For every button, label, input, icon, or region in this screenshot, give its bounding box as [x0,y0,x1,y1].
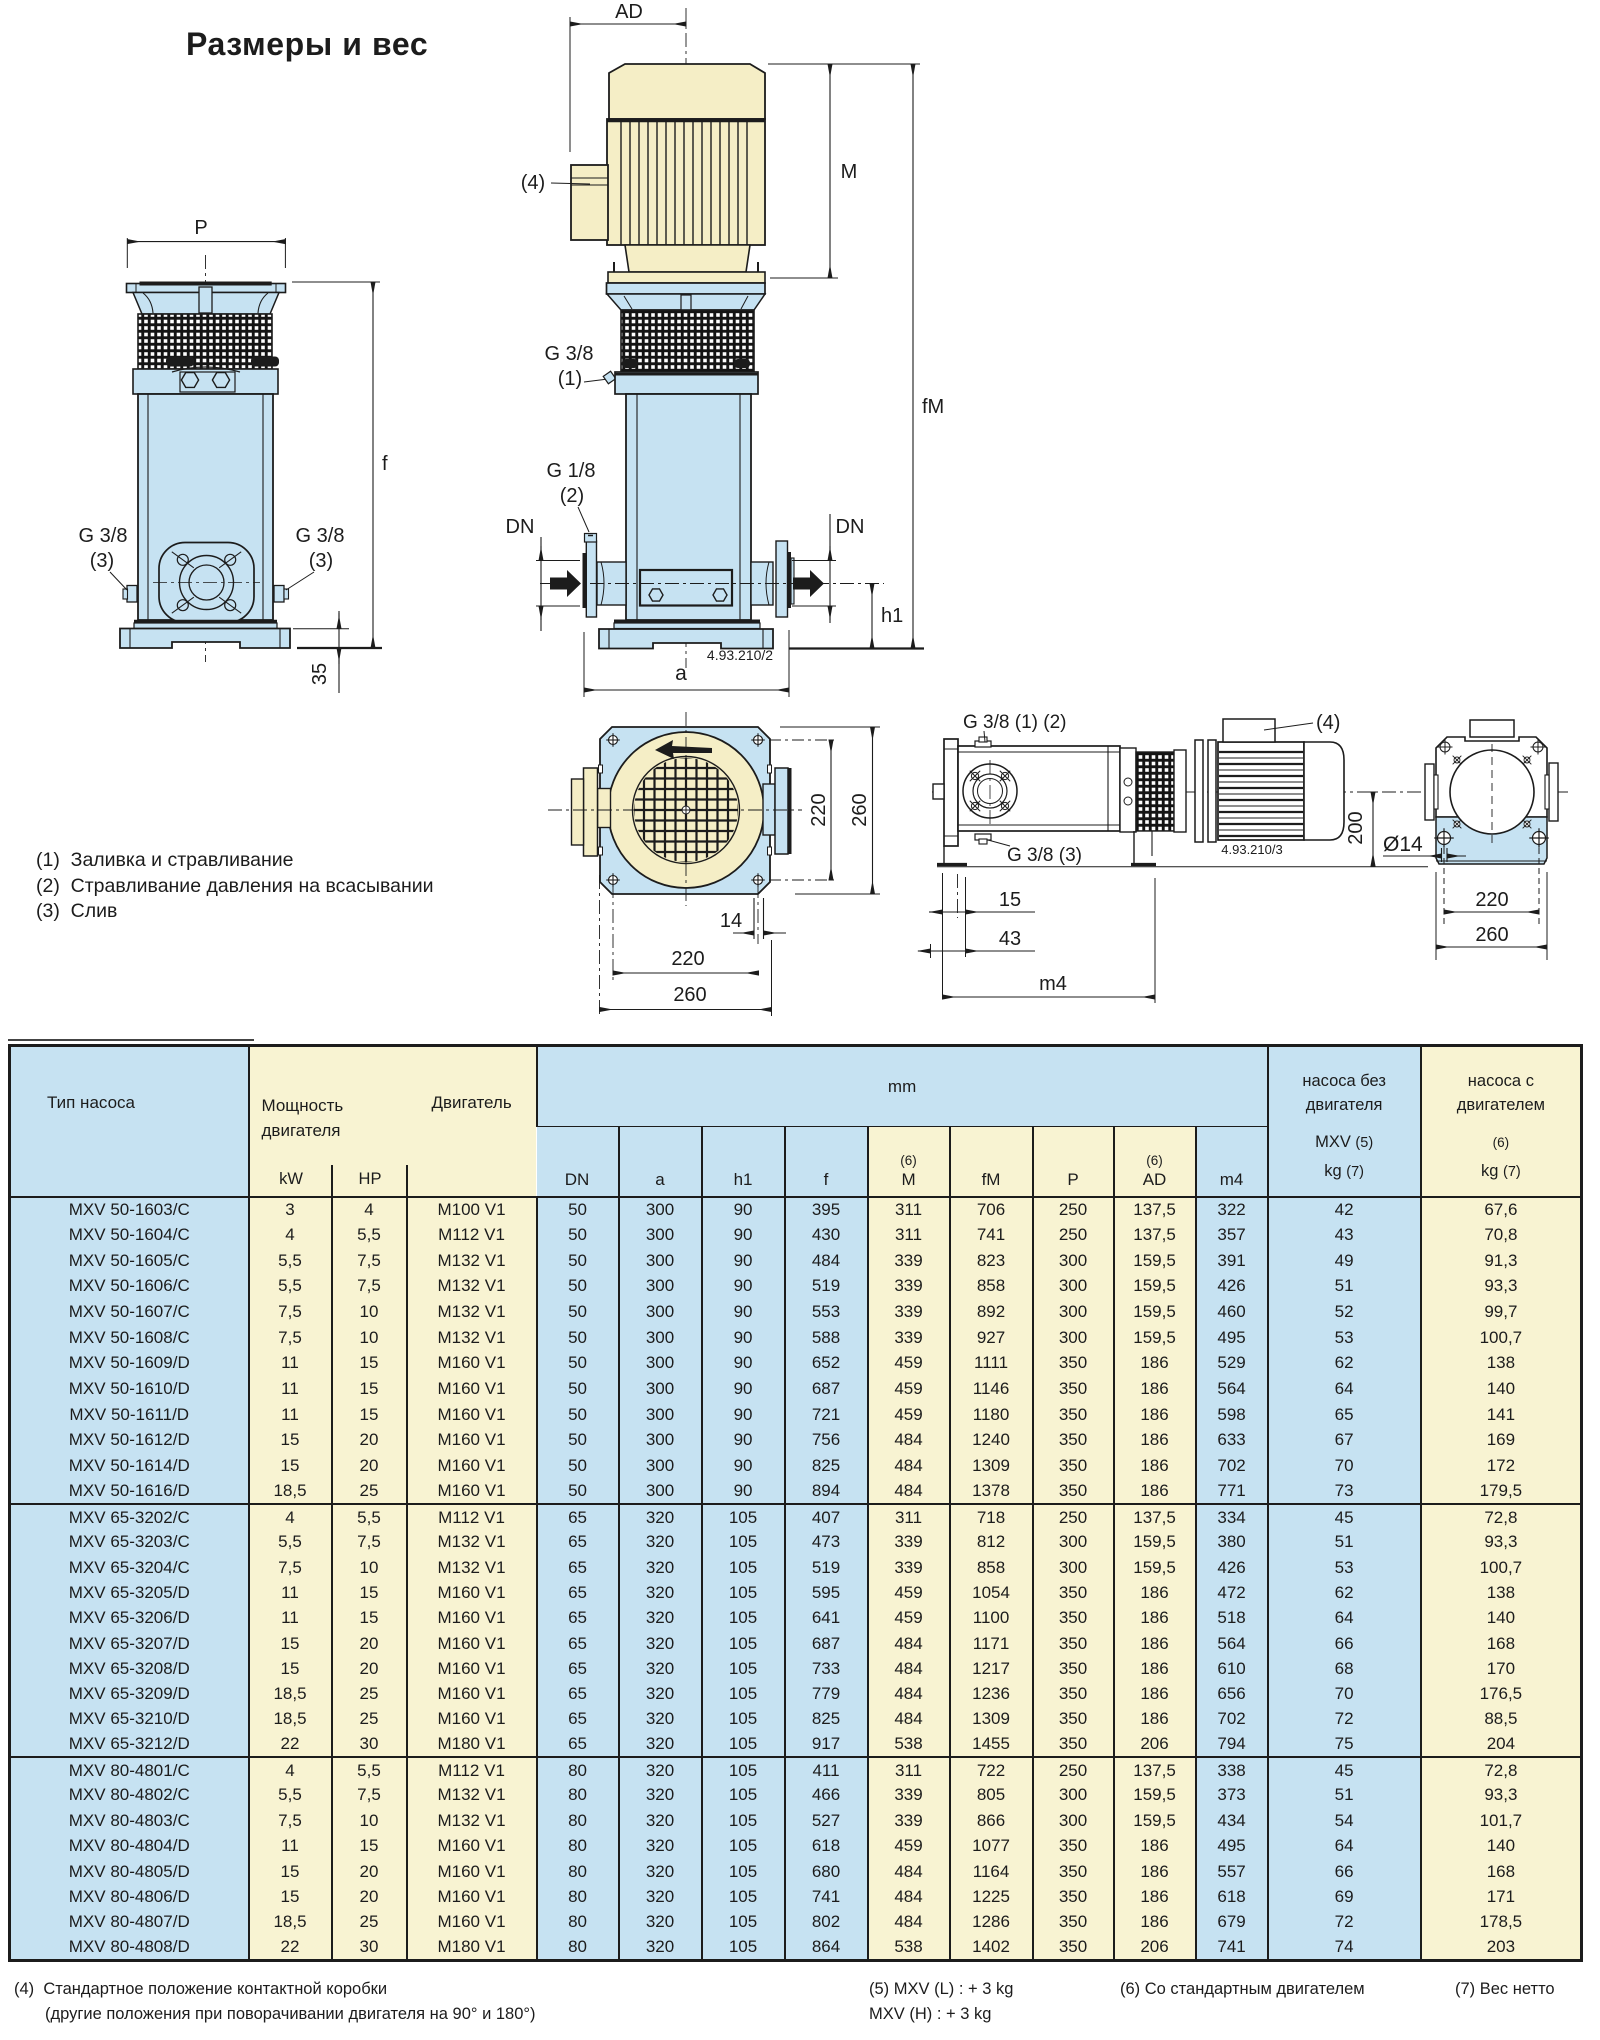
svg-text:4.93.210/2: 4.93.210/2 [707,647,773,663]
svg-text:14: 14 [720,910,742,932]
svg-text:P: P [194,217,207,239]
svg-text:220: 220 [808,793,830,826]
svg-text:G 3/8 (3): G 3/8 (3) [1007,845,1082,866]
svg-text:G 1/8: G 1/8 [547,460,596,482]
svg-text:(3): (3) [309,550,333,572]
svg-text:220: 220 [671,948,704,970]
svg-text:(3): (3) [90,550,114,572]
svg-text:200: 200 [1345,811,1367,844]
svg-text:260: 260 [1475,924,1508,946]
svg-text:M: M [841,161,858,183]
svg-text:35: 35 [309,663,331,685]
svg-text:4.93.210/3: 4.93.210/3 [1221,842,1282,857]
svg-text:Ø14: Ø14 [1383,833,1423,856]
svg-text:43: 43 [999,928,1021,950]
svg-text:(1): (1) [558,368,582,390]
svg-text:G 3/8: G 3/8 [296,525,345,547]
svg-text:15: 15 [999,889,1021,911]
svg-text:m4: m4 [1039,973,1067,995]
svg-text:a: a [675,662,687,685]
svg-text:220: 220 [1475,889,1508,911]
svg-text:G 3/8: G 3/8 [545,343,594,365]
svg-text:DN: DN [836,516,865,538]
svg-text:(2): (2) [560,485,584,507]
svg-text:G 3/8 (1) (2): G 3/8 (1) (2) [963,712,1066,733]
svg-text:260: 260 [673,984,706,1006]
svg-text:AD: AD [615,1,643,23]
svg-text:fM: fM [922,396,944,418]
svg-text:260: 260 [849,793,871,826]
svg-text:G 3/8: G 3/8 [79,525,128,547]
svg-text:f: f [382,453,388,475]
svg-text:DN: DN [506,516,535,538]
svg-text:(4): (4) [1316,712,1340,734]
svg-text:h1: h1 [881,605,903,627]
svg-text:(4): (4) [521,172,545,194]
